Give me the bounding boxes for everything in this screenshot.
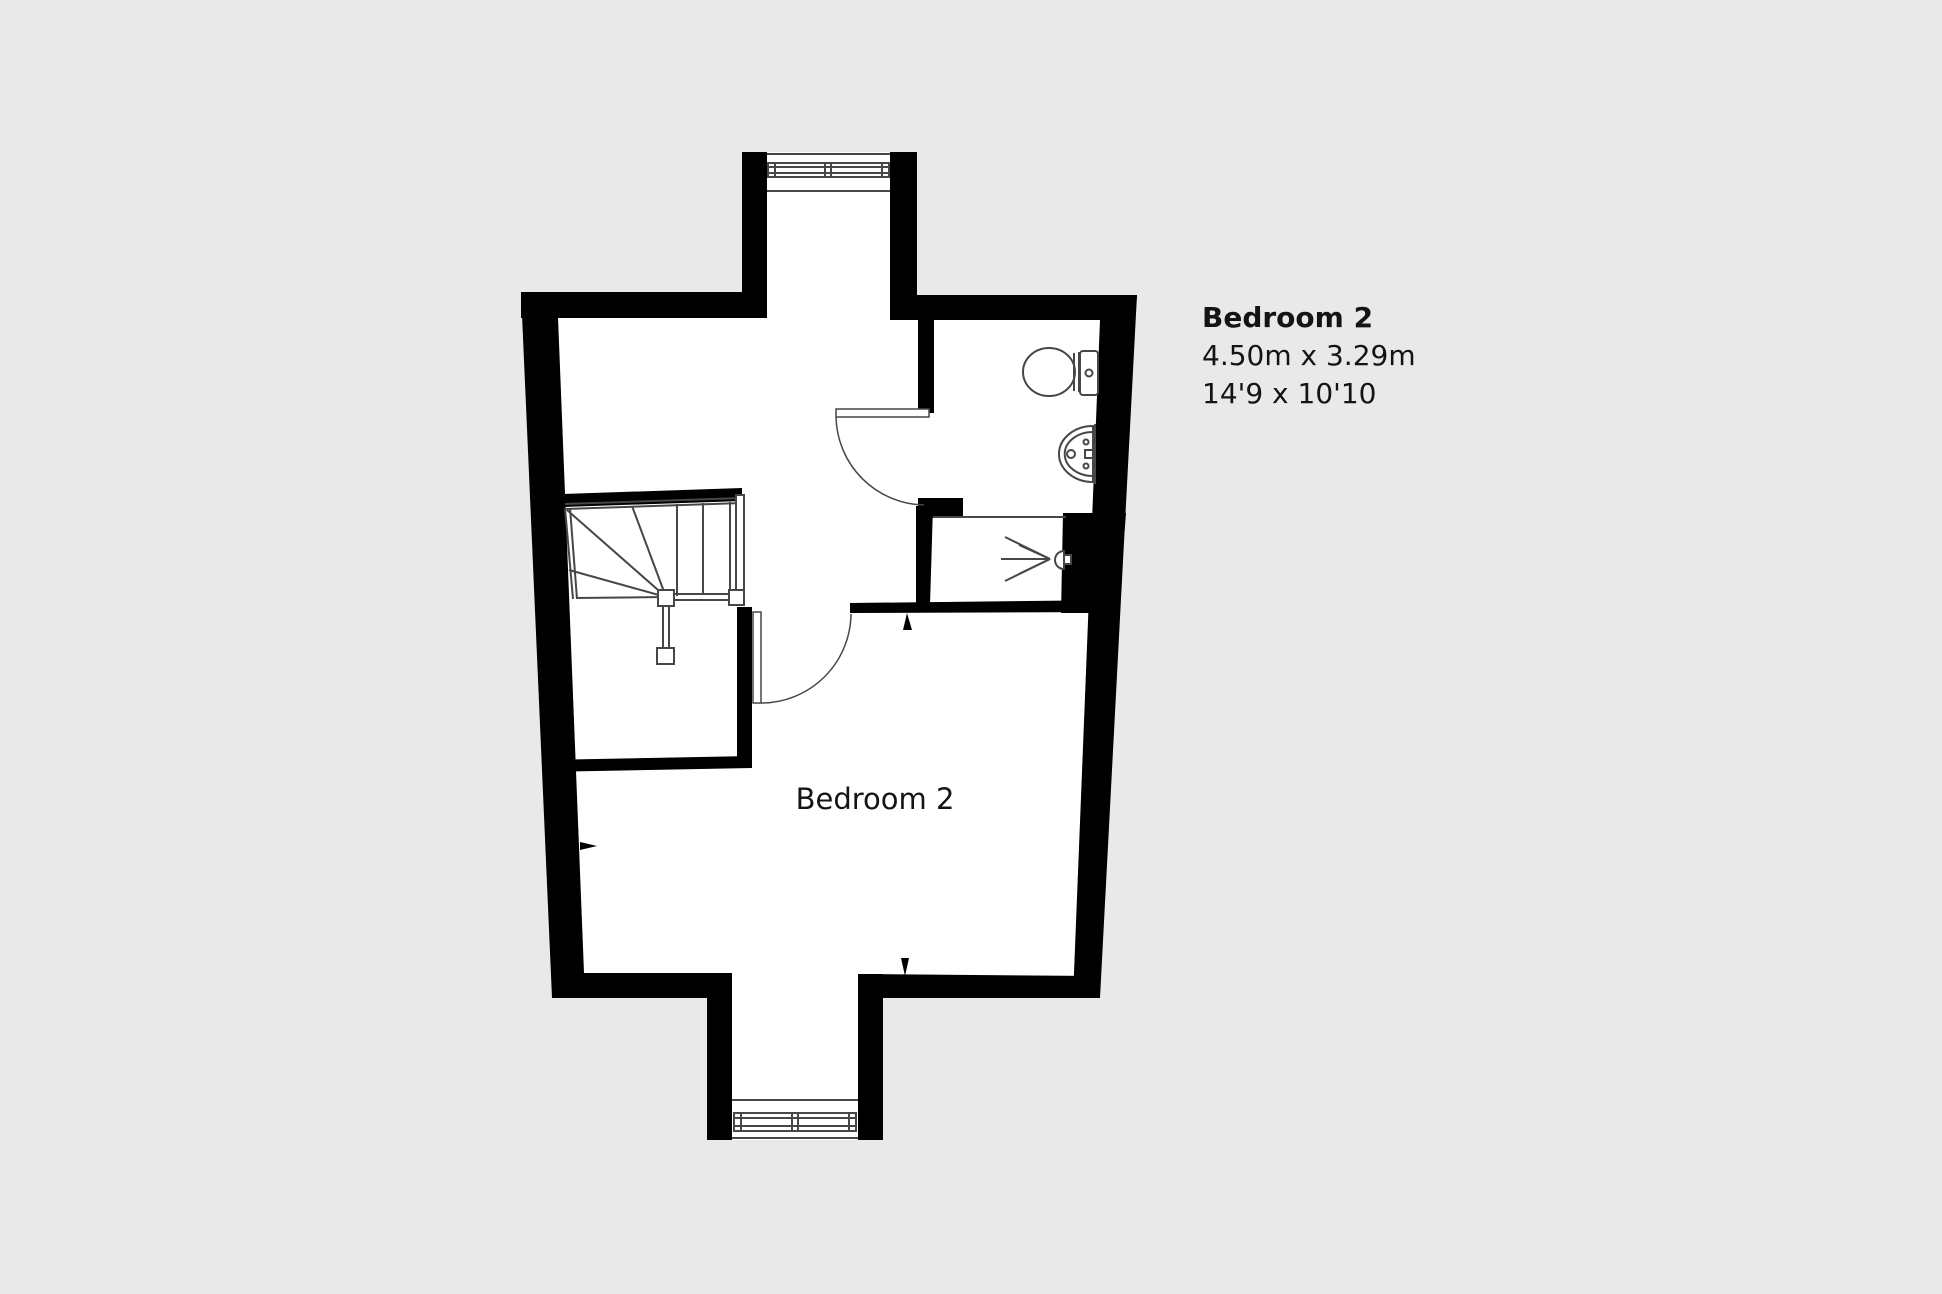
wall-bath-jamb xyxy=(918,498,963,518)
wall-stair-stub xyxy=(737,607,752,765)
wall-bottom-left xyxy=(552,973,732,998)
rail-end-post-bottom xyxy=(657,648,674,664)
bathroom-door-leaf xyxy=(836,409,929,417)
wall-bottom-bay-right xyxy=(858,974,883,1140)
annotation-room-title: Bedroom 2 xyxy=(1202,299,1416,337)
annotation-size-metric: 4.50m x 3.29m xyxy=(1202,337,1416,375)
bedroom-door-leaf xyxy=(753,612,761,703)
annotation-size-imperial: 14'9 x 10'10 xyxy=(1202,375,1416,413)
floorplan-drawing: Bedroom 2 xyxy=(0,0,1942,1294)
toilet-bowl xyxy=(1023,348,1075,396)
balustrade-column xyxy=(736,495,744,593)
wall-top-right xyxy=(890,295,1137,320)
toilet-cistern xyxy=(1080,351,1098,395)
wall-bottom-bay-left xyxy=(707,973,732,1140)
wall-bottom-right xyxy=(858,974,1098,998)
room-label: Bedroom 2 xyxy=(796,782,955,816)
wall-top-left xyxy=(521,292,742,318)
newel-post xyxy=(658,590,674,606)
annotation-block: Bedroom 2 4.50m x 3.29m 14'9 x 10'10 xyxy=(1202,299,1416,413)
floorplan-page: Bedroom 2 Bedroom 2 4.50m x 3.29m 14'9 x… xyxy=(0,0,1942,1294)
wall-hall-divider-upper xyxy=(918,318,934,413)
wall-top-bay-left xyxy=(742,152,767,318)
shower-head-icon xyxy=(1055,551,1064,569)
toilet-fixture xyxy=(1023,348,1098,396)
rail-end-post-right xyxy=(729,590,744,605)
wall-top-bay-right xyxy=(890,152,917,318)
